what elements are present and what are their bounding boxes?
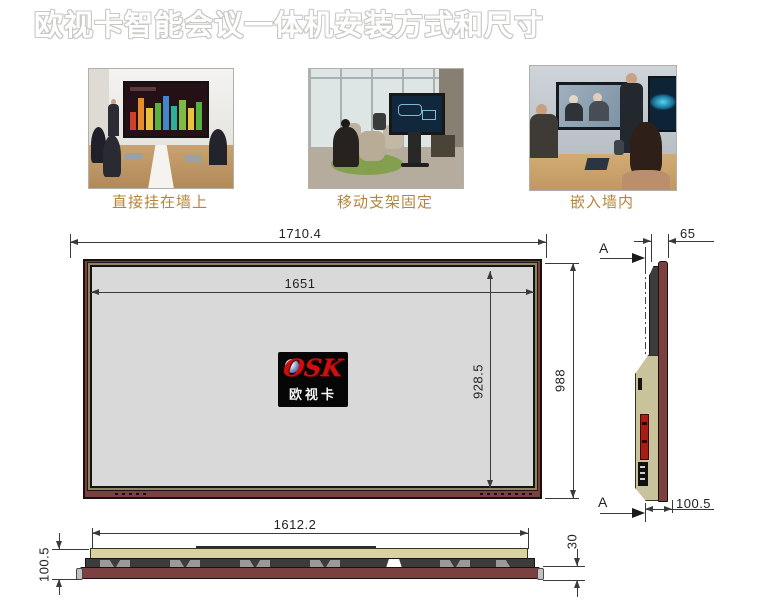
bottom-view-front-frame	[80, 567, 540, 579]
logo-name-text: 欧视卡	[278, 384, 348, 403]
connector-block	[640, 414, 649, 460]
connector-detail	[642, 422, 647, 425]
chart-bar	[146, 108, 152, 130]
person-silhouette	[333, 127, 359, 167]
extension-line	[528, 528, 529, 549]
display-bar-chart	[130, 94, 202, 130]
dim-outer-height-label: 988	[553, 359, 568, 403]
chart-bar	[155, 103, 161, 130]
stand-base	[401, 163, 429, 167]
arrowhead	[570, 490, 576, 498]
dim-line-screen-height	[490, 271, 491, 488]
whiteboard-sketch	[422, 110, 436, 120]
section-marker-a-bottom: A	[598, 494, 608, 510]
section-arrowhead-top	[632, 253, 645, 263]
installation-photo-embedded	[529, 65, 677, 191]
section-arrow-line	[600, 258, 633, 259]
dim-line-outer-height	[573, 263, 574, 498]
chart-bar	[171, 106, 177, 130]
extension-line	[52, 549, 89, 550]
connector-detail	[642, 440, 647, 443]
section-arrowhead-bottom	[632, 508, 645, 518]
dim-total-depth-label: 100.5	[37, 543, 52, 587]
arrowhead	[70, 239, 78, 245]
chart-bar	[138, 98, 144, 130]
installation-photo-wall-mount	[88, 68, 234, 189]
dim-screen-height-label: 928.5	[471, 359, 486, 405]
laptop	[124, 153, 143, 160]
arrowhead	[487, 271, 493, 279]
attendee-silhouette	[209, 129, 227, 165]
arrowhead	[538, 239, 546, 245]
end-cap-right	[537, 568, 544, 580]
display-chart-title	[130, 87, 156, 91]
logo-brand-text: OSK	[276, 353, 350, 382]
dim-line-screen-width	[91, 292, 534, 293]
brand-logo: OSK 欧视卡	[278, 352, 348, 407]
arrowhead	[56, 579, 62, 587]
presenter-silhouette	[108, 104, 119, 136]
attendee-silhouette	[530, 114, 558, 158]
video-call-display	[556, 82, 628, 130]
bottom-view-bracket-line	[196, 546, 376, 548]
arrowhead	[664, 506, 672, 512]
chart-bar	[130, 112, 136, 130]
dim-side-depth-label: 100.5	[676, 496, 711, 511]
extension-line	[546, 234, 547, 258]
stand-column	[408, 132, 421, 164]
chart-bar	[188, 108, 194, 130]
arrowhead	[570, 263, 576, 271]
section-marker-a-top: A	[599, 240, 609, 256]
laptop	[184, 155, 203, 162]
side-view-rear-housing	[635, 355, 659, 501]
caption-embedded: 嵌入墙内	[529, 191, 675, 212]
arrowhead	[668, 238, 676, 244]
section-centerline	[645, 267, 646, 357]
display-on-stand	[389, 93, 445, 135]
installation-diagram-page: 欧视卡智能会议一体机安装方式和尺寸 直接挂	[0, 0, 769, 603]
bottom-sensor-dots-left	[115, 493, 147, 495]
dim-front-depth-label: 30	[565, 520, 580, 564]
caller-silhouette	[565, 103, 583, 121]
section-arrow-line	[600, 513, 633, 514]
audio-wave	[650, 94, 676, 110]
lounge-chair	[359, 131, 385, 161]
chart-bar	[163, 96, 169, 130]
chart-bar	[179, 100, 185, 130]
dim-top-depth-label: 65	[680, 226, 695, 241]
section-line	[645, 247, 646, 267]
woman-back-hair	[630, 122, 662, 176]
speakerphone	[614, 140, 624, 155]
dim-back-width-label: 1612.2	[265, 517, 325, 532]
arrowhead	[643, 238, 651, 244]
laptop	[585, 158, 610, 170]
extension-line	[651, 234, 652, 262]
extension-line	[545, 498, 579, 499]
chart-bar	[196, 102, 202, 130]
whiteboard-sketch	[398, 104, 422, 116]
port-detail	[638, 378, 642, 390]
attendee-silhouette	[103, 135, 121, 177]
dim-outer-width-label: 1710.4	[270, 226, 330, 241]
extension-line	[672, 500, 673, 513]
dim-line-outer-width	[70, 242, 546, 243]
arrowhead	[92, 530, 100, 536]
arrowhead	[487, 480, 493, 488]
installation-photo-mobile-stand	[308, 68, 464, 189]
page-title: 欧视卡智能会议一体机安装方式和尺寸	[34, 2, 544, 44]
port-mark	[640, 466, 645, 468]
dim-line-back-width	[92, 533, 528, 534]
wall-display	[123, 81, 209, 138]
arrowhead	[526, 289, 534, 295]
side-view-front-glass	[658, 261, 668, 502]
arrowhead	[520, 530, 528, 536]
arrowhead	[574, 580, 580, 588]
caller-silhouette	[589, 101, 609, 121]
black-chair	[373, 113, 386, 130]
extension-line	[543, 566, 585, 567]
bottom-sensor-dots-right	[480, 493, 536, 495]
caption-mobile-stand: 移动支架固定	[308, 191, 462, 212]
side-cabinet	[431, 135, 455, 157]
arrowhead	[91, 289, 99, 295]
arrowhead	[645, 506, 653, 512]
dim-screen-width-label: 1651	[270, 276, 330, 291]
port-mark	[640, 472, 645, 474]
port-mark	[640, 478, 645, 480]
caption-wall-mount: 直接挂在墙上	[88, 191, 232, 212]
arrowhead	[56, 541, 62, 549]
woman-shoulders	[622, 170, 670, 190]
port-panel	[638, 462, 648, 486]
extension-line	[70, 234, 71, 258]
